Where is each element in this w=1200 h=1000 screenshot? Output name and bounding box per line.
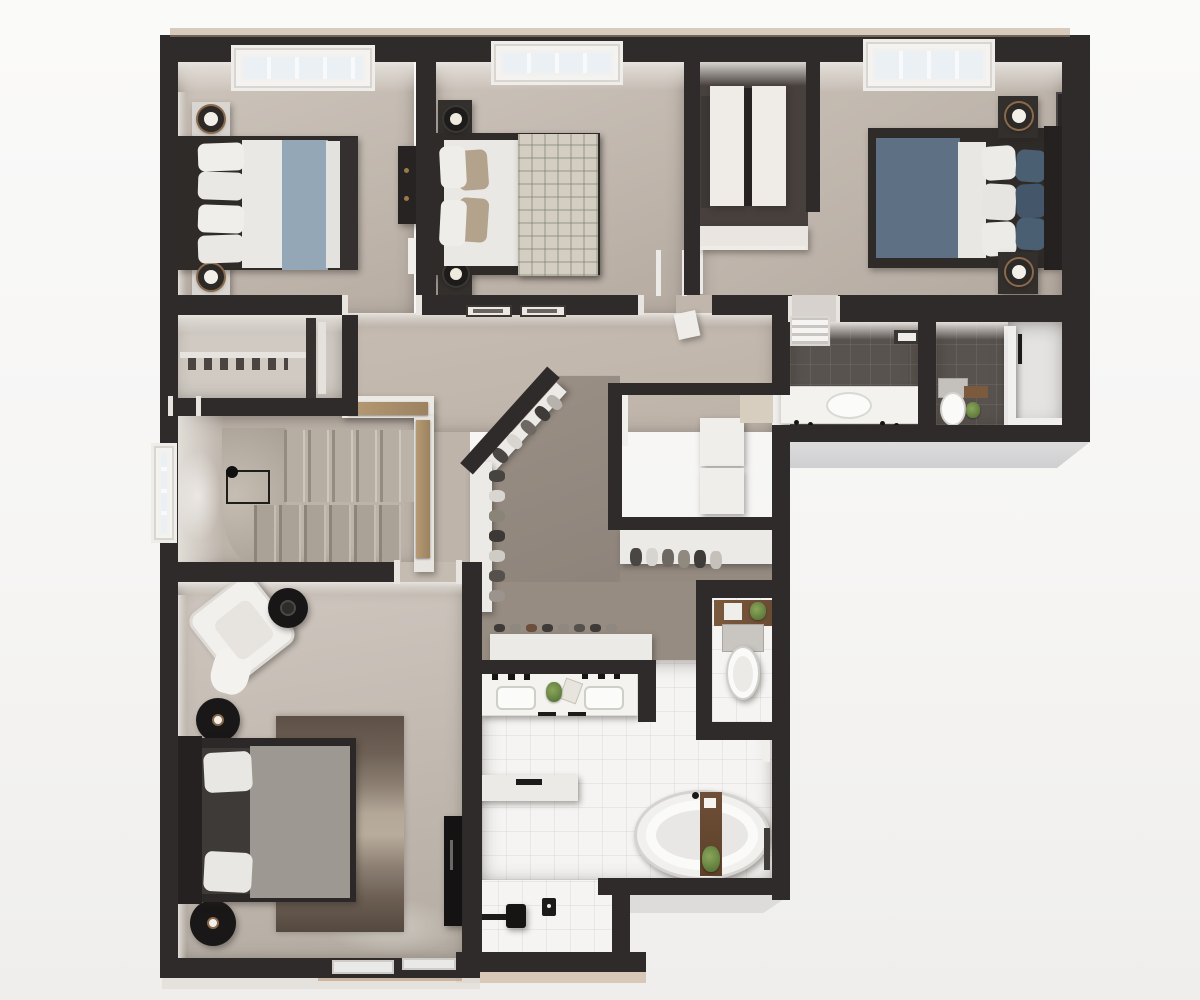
stair-tread-low-6: [379, 505, 401, 562]
b1-lamp-bottom: [198, 264, 224, 290]
stair-landing: [402, 430, 414, 502]
window-master-1: [332, 960, 394, 974]
b1-bed-pillow-3: [198, 204, 245, 234]
b1-lamp-top: [198, 106, 224, 132]
mbath-halfwall-towelbar: [516, 779, 542, 785]
stair-tread-low-3: [304, 505, 326, 562]
casing-laundry-gap-left: [168, 396, 173, 416]
closet-clothes-left-1: [489, 470, 505, 482]
b3-closet-rod: [700, 246, 806, 250]
mshower-head: [506, 904, 526, 928]
stair-wall-rack-knob: [226, 466, 238, 478]
stair-tread-up-4: [356, 430, 377, 502]
hallbath-wall-face-cream: [740, 395, 773, 423]
wall-shower-right: [612, 893, 630, 958]
b3-closet-clothes-left: [701, 96, 710, 208]
closet-clothes-left-6: [489, 570, 505, 582]
master-pillow-white-2: [203, 851, 253, 893]
stair-tread-low-5: [354, 505, 376, 562]
wc-plant: [750, 602, 766, 620]
closet-shoes-7: [590, 624, 601, 632]
b2-plaid-blanket: [518, 134, 598, 276]
wall-vanity-nub: [638, 660, 656, 722]
b1-dresser-knob-1: [404, 168, 409, 173]
wingbath-toilet-bowl: [940, 392, 966, 426]
closet-clothes-low-6: [710, 551, 722, 569]
b3-pillow-white-2: [981, 183, 1017, 221]
closet-clothes-left-4: [489, 530, 505, 542]
hallbath-linen-cabinet-2: [700, 468, 744, 514]
wc-toilet-seat-inner: [733, 656, 753, 692]
laundry-topwall-face: [172, 315, 342, 333]
b3-lamp-bottom: [1006, 259, 1032, 285]
window-b3-panes: [872, 48, 986, 82]
b3-lamp-top: [1006, 103, 1032, 129]
stair-tread-low-1: [254, 505, 276, 562]
master-pillow-white-1: [203, 751, 253, 793]
mbath-tub-plant: [702, 846, 720, 872]
wingbath-caddy: [964, 386, 988, 398]
wingbath-shower-bar: [1018, 334, 1022, 364]
casing-b1-gap-right: [416, 295, 422, 315]
b1-bed-pillow-2: [198, 171, 245, 201]
wall-right-outer: [1062, 35, 1090, 442]
wall-hallbath-left: [608, 383, 622, 530]
laundry-closet-shelf: [318, 322, 326, 394]
closet-shoes-2: [510, 624, 521, 632]
wall-wing-bottom: [772, 425, 1090, 442]
closet-clothes-low-2: [646, 548, 658, 566]
wall-hallbath-bottom: [608, 517, 790, 530]
stair-window-light: [174, 450, 222, 542]
window-master-2: [402, 958, 456, 970]
wc-towels: [724, 603, 742, 620]
casing-b2-gap-left: [638, 295, 644, 315]
master-tv-glint: [450, 840, 453, 870]
stair-tread-up-1: [284, 430, 305, 502]
wingbath-sink: [826, 392, 872, 419]
b3-closet-unit-2: [752, 86, 786, 206]
closet-clothes-low-3: [662, 549, 674, 567]
mbath-tub-soap: [704, 798, 716, 808]
b3-pillow-blue-1: [1015, 149, 1047, 183]
wall-wing-top-seg2: [838, 295, 1090, 322]
casing-b1-gap-left: [342, 295, 348, 315]
hall-plaque-2-text: [527, 309, 557, 313]
closet-shoes-1: [494, 624, 505, 632]
closet-clothes-left-5: [489, 550, 505, 562]
closet-clothes-left-2: [489, 490, 505, 502]
b2-pillow-white-2: [439, 199, 467, 246]
casing-wing-gap-right: [836, 296, 840, 322]
wall-closet-bath: [470, 660, 640, 674]
stair-tread-low-4: [329, 505, 351, 562]
hallway-corridor-floor: [432, 432, 470, 575]
stair-tread-up-2: [308, 430, 329, 502]
closet-shoes-5: [558, 624, 569, 632]
stair-tread-up-3: [332, 430, 353, 502]
b1-bed-pillow-4: [198, 234, 245, 264]
closet-clothes-left-7: [489, 590, 505, 602]
laundry-shelf-items: [188, 358, 288, 370]
stair-rail-vertical: [416, 420, 430, 558]
wall-wc-top: [696, 580, 790, 598]
casing-laundry-gap-right: [196, 396, 201, 416]
b3-headboard: [1044, 126, 1062, 270]
closet-shoes-3: [526, 624, 537, 632]
mbath-tub-filler: [692, 792, 699, 799]
wall-wing-divider: [918, 322, 936, 425]
b2-lamp-top: [444, 107, 468, 131]
hall-plaque-1-text: [473, 309, 503, 313]
wall-wc-left: [696, 588, 712, 738]
b1-dresser-knob-2: [404, 196, 409, 201]
b1-bed-throw-blue: [282, 140, 328, 270]
wall-wc-bottom: [696, 722, 790, 740]
master-lamp-top-glow: [212, 714, 224, 726]
wall-right-vert-a: [772, 310, 790, 395]
mbath-towelbar-2: [568, 712, 586, 716]
closet-clothes-left-3: [489, 510, 505, 522]
casing-master-gap-left: [394, 560, 400, 584]
stair-tread-low-2: [279, 505, 301, 562]
closet-clothes-low-1: [630, 548, 642, 566]
floor-plan-render: [0, 0, 1200, 1000]
closet-clothes-low-4: [678, 550, 690, 568]
b3-pillow-blue-2: [1015, 183, 1047, 219]
wall-b1-b2: [416, 35, 436, 315]
wingbath-towels: [898, 333, 916, 341]
wall-shower-bottom: [456, 952, 646, 972]
b3-pillow-white-1: [981, 145, 1017, 181]
wall-master-top-a: [160, 562, 398, 582]
master-duvet: [250, 746, 350, 898]
roof-face-wing-bottom: [790, 442, 1090, 468]
mshower-control-dot: [547, 904, 551, 908]
roof-edge-top: [170, 28, 1070, 37]
b1-bed-duvet-white: [242, 140, 284, 268]
master-headboard: [176, 736, 202, 904]
mbath-sink-right: [584, 686, 624, 710]
b3-duvet-blue: [876, 138, 960, 258]
wall-mid-seg3: [712, 295, 774, 315]
closet-shoes-8: [606, 624, 617, 632]
b1-door-leaf: [408, 238, 416, 274]
b3-pillow-blue-3: [1015, 217, 1047, 251]
window-b2-panes: [500, 50, 614, 76]
stair-tread-up-5: [380, 430, 401, 502]
wall-hallbath-top: [608, 383, 790, 395]
laundry-divider-wall: [306, 318, 316, 398]
master-lamp-bottom-glow: [207, 917, 219, 929]
closet-shoes-6: [574, 624, 585, 632]
hallbath-linen-cabinet-1: [700, 418, 744, 466]
b1-bed-pillow-1: [198, 142, 245, 172]
roof-face-shower-bottom: [456, 972, 646, 983]
casing-master-gap-right: [456, 560, 462, 584]
window-stair-panes: [158, 450, 170, 536]
b2-pillow-white-1: [439, 145, 467, 188]
mbath-sink-left: [496, 686, 536, 710]
mbath-plant: [546, 682, 562, 702]
b1-bed-foot-frame: [340, 138, 358, 270]
stair-rail-horizontal: [348, 402, 428, 415]
b3-closet-gap-clothes: [744, 88, 752, 206]
closet-shoe-shelf: [490, 634, 652, 662]
wingbath-ceiling-vent: [790, 316, 830, 346]
master-sidetable-decor: [280, 600, 296, 616]
wall-b2-closet: [684, 35, 700, 295]
wing-bath-shower-floor: [1008, 322, 1062, 425]
closet-clothes-low-5: [694, 550, 706, 568]
b3-closet-back-face: [700, 60, 808, 86]
b2-door-casing-1: [656, 250, 661, 296]
wall-closet-b3: [806, 35, 820, 212]
b3-closet-unit-1: [710, 86, 744, 206]
mbath-towel-dark: [764, 828, 770, 870]
wall-laundry-bottom: [160, 398, 358, 416]
wingbath-shower-glass: [1004, 326, 1016, 426]
wingbath-plant: [966, 402, 980, 418]
wall-master-right: [462, 562, 482, 958]
mbath-towelbar-1: [538, 712, 556, 716]
closet-shoes-4: [542, 624, 553, 632]
wall-right-vert-b: [772, 428, 790, 900]
window-b1-panes: [240, 54, 366, 82]
wall-mid-seg1: [160, 295, 348, 315]
